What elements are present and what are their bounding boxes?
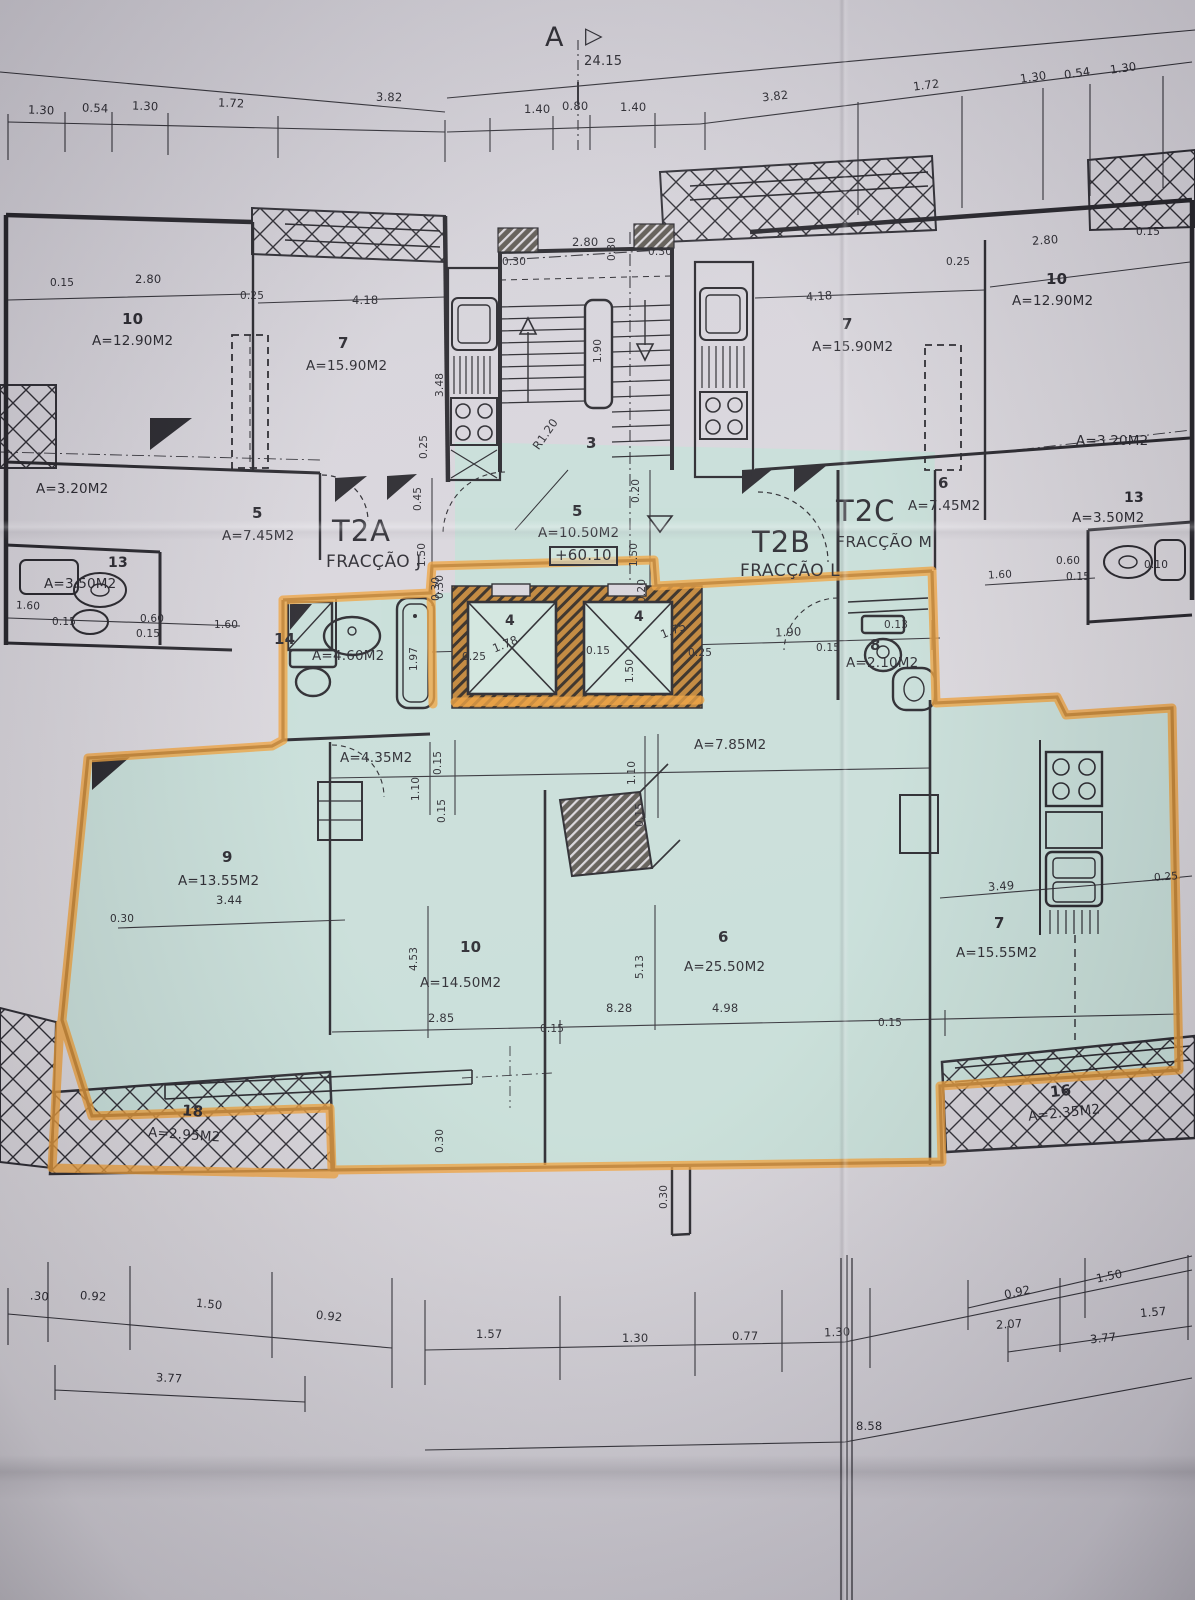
elevator-shaft bbox=[452, 584, 702, 708]
plan-linework bbox=[0, 0, 1195, 1600]
floorplan-photo: A ▷ 24.15 1.30 0.54 1.30 1.72 3.82 1.40 … bbox=[0, 0, 1195, 1600]
walls-upper-left bbox=[6, 215, 448, 650]
